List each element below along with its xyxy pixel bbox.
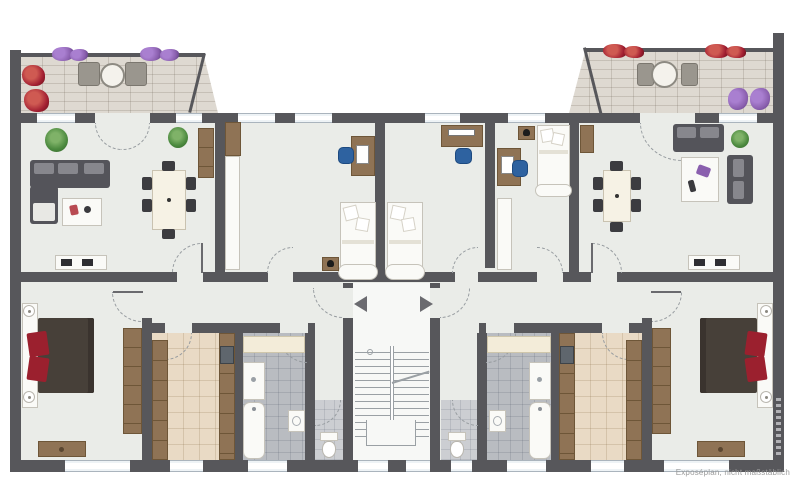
tv-lowboard-detail [715,259,726,266]
toilet-bowl [322,441,336,458]
balcony-left-chair-1 [78,62,100,86]
lower-wall-left [308,323,315,333]
bed-duvet-band [342,240,374,244]
floor-plant-icon [45,128,68,152]
balcony-right-round-table [651,61,678,88]
sofa-chaise-pad [33,203,55,221]
bed-accent-pillow [26,356,49,383]
wall-kids-right-divider [485,122,495,268]
window [238,113,275,123]
bathtub-faucet [538,407,542,411]
shower-drain [537,377,542,382]
dresser-knob [59,447,64,452]
sofa-cushion [733,181,744,199]
balcony-right-chair-2 [681,63,698,86]
window [451,460,472,472]
house-entrance-window [358,460,388,472]
house-entrance-window [406,460,430,472]
bath-vanity [487,336,551,353]
wall-kitchen-bath-right [551,333,559,462]
staircase-landing [366,420,416,446]
bed-accent-pillow [744,356,767,383]
entrance-arrow-right-icon [420,296,433,312]
sofa-cushion [677,127,696,138]
dining-chair [186,177,196,190]
window [425,113,460,123]
bedroom-wardrobe [652,328,671,434]
stairwell-wall-left [343,318,353,462]
balcony-door-right-opening [640,113,695,123]
bed-accent-pillow [744,331,767,358]
living-room-door-left-leaf [201,243,203,273]
bed-footboard [385,264,425,280]
desk-chair [512,160,528,177]
bedside-lamp-icon [23,391,35,403]
flower-box-icon [160,49,179,61]
window [37,113,75,123]
sofa-cushion [34,163,54,174]
door-opening [177,272,203,282]
shower-drain [251,377,256,382]
door-opening [537,272,563,282]
bedside-lamp-icon [760,391,772,403]
dining-chair [593,199,603,212]
bedside-lamp-icon [23,305,35,317]
bedside-lamp-icon [760,305,772,317]
nightstand-decor [523,129,530,136]
rug-decor [84,206,91,213]
dining-chair [142,199,152,212]
laptop-icon [356,145,369,164]
monitor-icon [448,129,475,136]
window [719,113,757,123]
bed-pillow [355,217,370,232]
bed-footboard [338,264,378,280]
sofa-cushion [58,163,78,174]
flower-pot-icon [750,88,770,110]
bed-pillow [551,132,565,146]
kitchen-sink-icon [560,346,574,364]
double-bed-duvet [38,318,94,393]
dining-chair [162,229,175,239]
dining-table-center [615,194,619,198]
sofa-cushion [700,127,719,138]
bed-pillow [401,217,416,232]
bath-vanity [243,336,305,353]
lower-wall-left [192,323,280,333]
sideboard [580,125,594,153]
flower-box-icon [140,47,162,61]
stairwell-wall-right [430,318,440,462]
bedroom-left-door-leaf [113,291,143,293]
dining-chair [593,177,603,190]
lower-wall-right [514,323,602,333]
dining-chair [142,177,152,190]
window [295,113,332,123]
stairwell-wall-left [343,283,353,288]
potted-plant-icon [168,127,188,148]
toilet [448,432,466,441]
toilet-bowl [450,441,464,458]
bedroom-wardrobe [123,328,142,434]
window [170,460,203,472]
sofa-cushion [733,159,744,177]
balcony-door-left-opening [95,113,150,123]
floor-plan: Exposéplan, nicht maßstäblich [0,0,794,489]
dresser-knob [718,447,723,452]
tv-lowboard-detail [82,259,93,266]
wall-living-kids-left [215,122,225,272]
kitchen-counter [152,340,168,460]
washbasin-bowl [493,416,502,426]
window [508,113,545,123]
flower-pot-icon [24,89,49,112]
bed-accent-pillow [26,331,49,358]
toilet [320,432,338,441]
living-room-rug [62,198,102,226]
dining-chair [186,199,196,212]
door-opening [268,272,293,282]
plan-caption: Exposéplan, nicht maßstäblich [520,468,790,480]
stairwell-wall-right [430,283,440,288]
door-opening [591,272,617,282]
entrance-arrow-left-icon [354,296,367,312]
wall-kids-divider [375,122,385,272]
bathtub-faucet [252,407,256,411]
window [65,460,130,472]
bed-footboard [535,184,572,197]
flower-box-icon [624,46,644,58]
living-room-door-right-leaf [591,243,593,273]
sofa-cushion [84,163,104,174]
washbasin-bowl [292,416,301,426]
tv-lowboard-detail [694,259,705,266]
desk-chair [338,147,354,164]
kitchen-counter [626,340,642,460]
window [176,113,202,123]
wall-bedroom-right [642,318,652,462]
desk-chair [455,148,472,164]
dining-chair [631,199,641,212]
dining-table-center [167,198,171,202]
flower-box-icon [726,46,746,58]
kitchen-sink-icon [220,346,234,364]
door-opening [455,272,478,282]
dining-chair [610,222,623,232]
tv-lowboard-detail [61,259,72,266]
kids2-wardrobe-white [497,198,512,270]
bed-duvet-band [539,150,568,154]
potted-plant-icon [731,130,749,148]
flower-box-icon [70,49,88,61]
bed-duvet-band [389,240,421,244]
tall-cabinet [198,128,214,178]
kids-wardrobe-white [225,156,240,270]
balcony-left-round-table [100,63,125,88]
vertical-watermark [776,398,781,456]
dining-chair [162,161,175,171]
bedroom-right-door-leaf [651,291,681,293]
dining-chair [610,161,623,171]
balcony-left-chair-2 [125,62,147,86]
wall-bedroom-left [142,318,152,462]
window [248,460,287,472]
dining-chair [631,177,641,190]
wall-kids-living-right [569,122,579,272]
wall-kitchen-bath-left [235,333,243,462]
lower-wall-right [479,323,486,333]
stair-lamp-symbol [367,349,373,355]
flower-pot-icon [22,65,45,86]
kids-wardrobe-brown [225,122,241,156]
nightstand-decor [327,260,334,267]
flower-pot-icon [728,88,748,110]
